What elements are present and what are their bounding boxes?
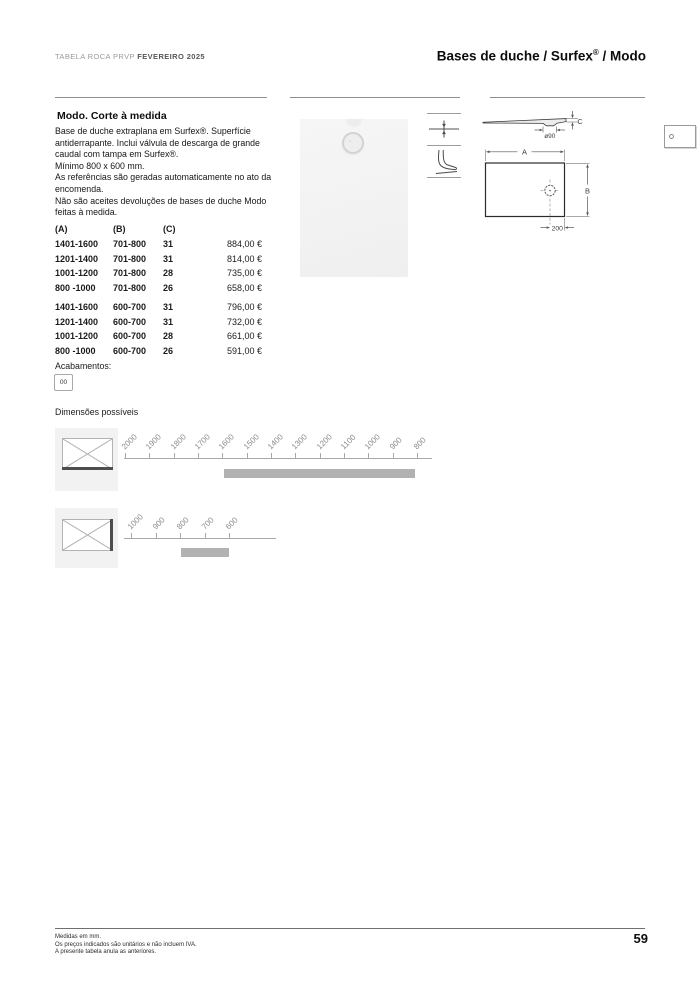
ruler-tick (156, 533, 157, 538)
highlighted-depth-edge (110, 519, 113, 551)
ruler-tick (198, 453, 199, 458)
price-table: (A) (B) (C) 1401-1600701-80031884,00 € 1… (55, 221, 262, 358)
feature-divider (427, 113, 461, 114)
ruler-tick-label: 800 (411, 435, 428, 452)
drain-cover (342, 132, 364, 154)
width-ruler: 2000 1900 1800 1700 1600 1500 1400 1300 … (124, 424, 444, 488)
ruler-tick (222, 453, 223, 458)
section-title: Modo. Corte à medida (57, 110, 167, 122)
tray-width-icon (62, 438, 113, 470)
header-rule-center (290, 97, 460, 98)
description-paragraph: Não são aceites devoluções de bases de d… (55, 196, 277, 219)
table-group-2: 1401-1600600-70031796,00 € 1201-1400600-… (55, 300, 262, 358)
drain-diameter-label: ø90 (544, 133, 556, 140)
ruler-tick (125, 453, 126, 458)
ruler-tick (205, 533, 206, 538)
catalog-page: TABELA ROCA PRVP FEVEREIRO 2025 Bases de… (0, 0, 700, 990)
ruler-tick-label: 1000 (125, 512, 145, 532)
ruler-tick-label: 1400 (265, 432, 285, 452)
ruler-axis (124, 538, 276, 539)
marker-drain-dot (669, 134, 674, 139)
table-group-1: 1401-1600701-80031884,00 € 1201-1400701-… (55, 237, 262, 295)
ruler-tick (229, 533, 230, 538)
ruler-axis (124, 458, 432, 459)
ruler-tick (295, 453, 296, 458)
ruler-tick (393, 453, 394, 458)
ruler-tick (344, 453, 345, 458)
price-table-header: (A) (B) (C) (55, 221, 262, 237)
ruler-tick (368, 453, 369, 458)
ruler-tick (417, 453, 418, 458)
finish-code-badge: 00 (54, 374, 73, 391)
width-dim-label: A (522, 148, 527, 157)
footer-notes: Medidas em mm. Os preços indicados são u… (55, 934, 197, 957)
table-row: 1001-1200600-70028661,00 € (55, 329, 262, 344)
description-paragraph: Mínimo 800 x 600 mm. (55, 161, 277, 173)
ruler-tick-label: 700 (199, 515, 216, 532)
finishes-label: Acabamentos: (55, 361, 111, 371)
ruler-tick (320, 453, 321, 458)
ruler-tick-label: 1300 (289, 432, 309, 452)
ruler-tick-label: 1200 (314, 432, 334, 452)
height-dim-label: C (578, 119, 583, 126)
ruler-tick-label: 1100 (338, 432, 358, 452)
description-paragraph: As referências são geradas automaticamen… (55, 172, 277, 195)
ruler-tick (149, 453, 150, 458)
ruler-tick-label: 900 (387, 435, 404, 452)
ruler-tick-label: 1900 (143, 432, 163, 452)
ruler-tick-label: 600 (223, 515, 240, 532)
depth-ruler: 1000 900 800 700 600 (124, 504, 294, 568)
ruler-tick-label: 1000 (362, 432, 382, 452)
col-header-a: (A) (55, 224, 113, 234)
plan-view: A B 200 (486, 148, 591, 233)
footer-rule (55, 928, 645, 929)
x-cross-icon (63, 520, 112, 550)
ruler-tick-label: 900 (150, 515, 167, 532)
product-photo (300, 119, 408, 277)
antislip-foot-icon (429, 148, 461, 178)
ruler-tick-label: 1600 (216, 432, 236, 452)
ruler-tick (271, 453, 272, 458)
depth-range-bar (181, 548, 229, 557)
depth-dim-label: B (585, 186, 590, 195)
table-row: 1401-1600701-80031884,00 € (55, 237, 262, 252)
catalog-header: TABELA ROCA PRVP FEVEREIRO 2025 (55, 52, 205, 61)
page-number: 59 (634, 931, 648, 946)
tray-depth-icon (62, 519, 113, 551)
depth-dimension-tile (55, 508, 118, 568)
side-profile-view: C ø90 (483, 111, 583, 140)
width-dimension-tile (55, 428, 118, 491)
drain-offset-label: 200 (552, 225, 564, 232)
table-row: 1001-1200701-80028735,00 € (55, 266, 262, 281)
page-title: Bases de duche / Surfex® / Modo (437, 48, 646, 64)
ruler-tick (174, 453, 175, 458)
ruler-tick-label: 800 (174, 515, 191, 532)
ruler-tick (180, 533, 181, 538)
tray-edge-shadow (346, 119, 362, 127)
width-range-bar (224, 469, 415, 478)
table-row: 1201-1400600-70031732,00 € (55, 315, 262, 330)
table-row: 1401-1600600-70031796,00 € (55, 300, 262, 315)
flush-installation-icon (427, 117, 461, 141)
ruler-tick-label: 2000 (119, 432, 139, 452)
header-rule-left (55, 97, 267, 98)
ruler-tick (247, 453, 248, 458)
highlighted-width-edge (62, 467, 113, 470)
footer-note: A presente tabela anula as anteriores. (55, 949, 197, 957)
footer-note: Medidas em mm. (55, 934, 197, 942)
ruler-tick-label: 1800 (168, 432, 188, 452)
description-paragraph: Base de duche extraplana em Surfex®. Sup… (55, 126, 277, 161)
ruler-tick-label: 1500 (241, 432, 261, 452)
table-row: 1201-1400701-80031814,00 € (55, 252, 262, 267)
ruler-tick-label: 1700 (192, 432, 212, 452)
technical-drawing: C ø90 A B (470, 98, 615, 243)
col-header-c: (C) (163, 224, 199, 234)
catalog-label: TABELA ROCA PRVP (55, 52, 135, 61)
table-row: 800 -1000600-70026591,00 € (55, 344, 262, 359)
table-row: 800 -1000701-80026658,00 € (55, 281, 262, 296)
feature-divider (427, 145, 461, 146)
product-description: Base de duche extraplana em Surfex®. Sup… (55, 126, 277, 219)
x-cross-icon (63, 439, 112, 469)
catalog-edition: FEVEREIRO 2025 (137, 52, 205, 61)
dimensions-label: Dimensões possíveis (55, 407, 138, 417)
page-edge-product-marker (664, 125, 696, 148)
footer-note: Os preços indicados são unitários e não … (55, 942, 197, 950)
col-header-b: (B) (113, 224, 163, 234)
ruler-tick (131, 533, 132, 538)
